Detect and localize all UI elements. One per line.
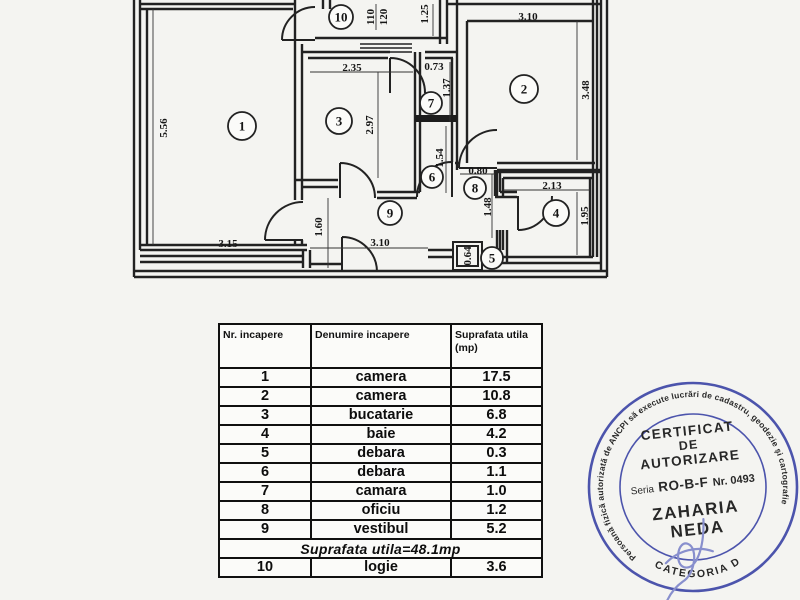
stamp-seria-line: Seria RO-B-F Nr. 0493 (630, 469, 756, 499)
stamp-group: Persoană fizică autorizată de ANCPI să e… (579, 373, 800, 600)
scanned-document: 5.563.151101201.253.103.482.350.731.372.… (0, 0, 800, 600)
certification-stamp: Persoană fizică autorizată de ANCPI să e… (0, 0, 800, 600)
